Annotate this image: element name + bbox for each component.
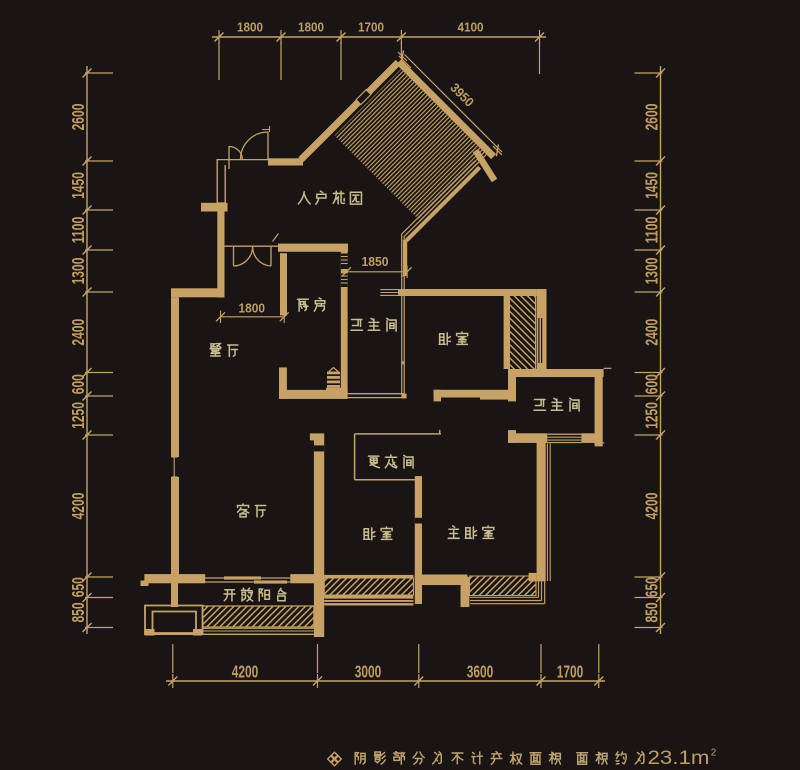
svg-text:1800: 1800 [239, 301, 266, 316]
svg-text:850: 850 [68, 602, 88, 622]
svg-text:600: 600 [642, 374, 662, 394]
svg-text:2600: 2600 [642, 103, 662, 130]
svg-text:4100: 4100 [458, 21, 484, 35]
svg-text:4200: 4200 [68, 492, 88, 519]
svg-text:1250: 1250 [68, 402, 88, 429]
svg-text:650: 650 [642, 577, 662, 597]
svg-text:2600: 2600 [68, 103, 88, 130]
svg-text:3000: 3000 [355, 662, 382, 682]
svg-text:23.1m: 23.1m [648, 748, 710, 769]
svg-text:2: 2 [711, 748, 717, 759]
svg-text:1250: 1250 [642, 402, 662, 429]
svg-text:1100: 1100 [68, 216, 88, 243]
svg-text:850: 850 [642, 602, 662, 622]
svg-text:4200: 4200 [642, 492, 662, 519]
svg-text:1450: 1450 [642, 172, 662, 199]
svg-text:1800: 1800 [298, 21, 324, 35]
svg-text:1700: 1700 [358, 21, 384, 35]
svg-text:1700: 1700 [557, 662, 584, 682]
svg-text:600: 600 [68, 374, 88, 394]
svg-text:1450: 1450 [68, 172, 88, 199]
svg-text:1800: 1800 [237, 21, 263, 35]
svg-text:4200: 4200 [232, 662, 259, 682]
svg-text:1850: 1850 [362, 254, 389, 269]
svg-text:2400: 2400 [642, 319, 662, 346]
svg-text:1300: 1300 [642, 257, 662, 284]
svg-text:650: 650 [68, 577, 88, 597]
svg-text:1100: 1100 [642, 216, 662, 243]
svg-text:3600: 3600 [467, 662, 494, 682]
svg-text:1300: 1300 [68, 257, 88, 284]
svg-text:2400: 2400 [68, 319, 88, 346]
